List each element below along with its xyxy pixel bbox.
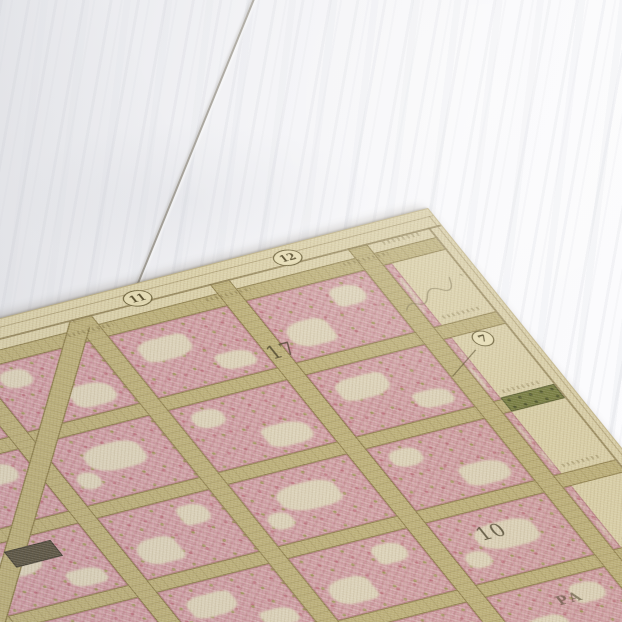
atlas-map-sheet: 1710PA12117 <box>0 208 622 622</box>
product-photo-scene: 1710PA12117 <box>0 0 622 622</box>
wood-plank-seam-line <box>133 0 257 294</box>
plate-number-badge: 12 <box>268 247 307 269</box>
map-content-layer: 1710PA12117 <box>0 209 622 622</box>
